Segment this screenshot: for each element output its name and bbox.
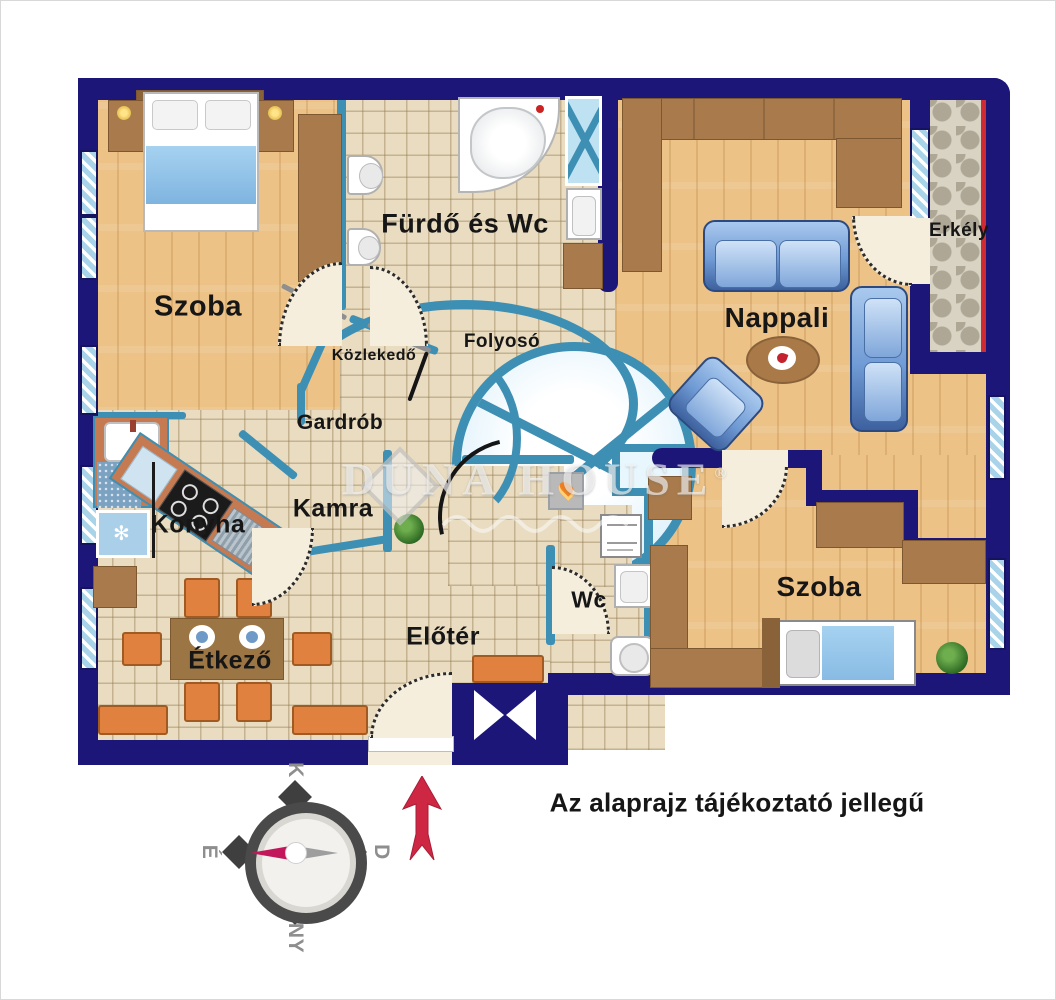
pillow — [205, 100, 251, 130]
column-x — [506, 690, 536, 740]
room-label-bedroom2: Szoba — [777, 571, 862, 603]
wc-sink — [614, 564, 654, 608]
window — [80, 150, 98, 216]
bidet-bowl — [358, 236, 380, 260]
desk-bedroom2 — [816, 502, 904, 548]
room-label-hallway: Közlekedő — [332, 347, 417, 365]
floor-plan: ✻ — [0, 0, 1056, 1000]
bench — [98, 705, 168, 735]
cabinet-bedroom2 — [648, 476, 692, 520]
bath-cabinet — [563, 243, 603, 289]
room-label-corridor: Folyosó — [464, 331, 540, 353]
sink-basin — [620, 571, 648, 603]
pillow — [786, 630, 820, 678]
single-bed — [768, 620, 916, 686]
room-label-balcony: Erkély — [929, 220, 989, 242]
window — [988, 395, 1006, 480]
toilet-bowl — [359, 163, 383, 189]
disclaimer-text: Az alaprajz tájékoztató jellegű — [550, 788, 925, 819]
bed-headboard — [762, 618, 780, 688]
washer-icon: ✻ — [113, 524, 133, 544]
dining-chair — [184, 682, 220, 722]
plate-center — [196, 631, 208, 643]
armchair-cushion — [682, 374, 748, 440]
toilet-bath — [347, 155, 383, 195]
wc-toilet — [610, 636, 654, 676]
door-gap-balcony — [910, 218, 930, 284]
wall-balcony-divider-top — [910, 98, 930, 130]
sofa-cushion — [864, 298, 902, 358]
compass-letter: É — [198, 845, 221, 860]
room-label-bathroom: Fürdő és Wc — [381, 209, 549, 240]
column-x — [474, 690, 504, 740]
wardrobe-bedroom2-v — [650, 545, 688, 651]
floorplan-screenshot: ✻ — [0, 0, 1056, 1000]
room-label-wc: Wc — [571, 587, 607, 614]
window — [80, 345, 98, 415]
double-bed — [143, 92, 259, 232]
compass-letter: NY — [284, 923, 307, 953]
sofa-cushion — [779, 240, 841, 288]
livingroom-cabinet-row — [622, 98, 902, 140]
compass-label-south: D — [369, 844, 393, 860]
blanket — [822, 626, 894, 680]
compass-label-east: K — [283, 762, 307, 778]
livingroom-cabinet-right — [836, 138, 902, 208]
blanket — [146, 146, 256, 204]
room-label-pantry: Kamra — [293, 495, 373, 524]
bathtub-faucet — [536, 105, 544, 113]
plant — [936, 642, 968, 674]
room-label-foyer: Előtér — [406, 623, 480, 652]
lamp — [117, 106, 131, 120]
door-leaf-entrance — [368, 736, 454, 752]
bench — [292, 705, 368, 735]
lamp — [268, 106, 282, 120]
compass-hub — [285, 842, 307, 864]
sofa — [703, 220, 850, 292]
room-label-bedroom1: Szoba — [154, 291, 242, 324]
compass-letter: K — [284, 762, 307, 778]
shower — [565, 96, 602, 186]
wardrobe-bedroom2-h — [650, 648, 772, 688]
window-balcony — [910, 128, 930, 220]
compass-label-north: É — [197, 845, 221, 860]
bathtub-basin — [470, 107, 546, 179]
washing-machine: ✻ — [96, 510, 150, 558]
pillow — [152, 100, 198, 130]
wardrobe-bedroom1 — [298, 114, 342, 282]
entrance-column-block — [452, 683, 558, 747]
room-label-dining: Étkező — [188, 647, 272, 676]
room-label-wardrobe: Gardrób — [297, 411, 383, 435]
north-arrow-icon — [400, 776, 444, 862]
sink-basin — [572, 196, 596, 236]
watermark-squiggle — [440, 508, 650, 534]
livingroom-cabinet-left — [622, 98, 662, 272]
window — [988, 558, 1006, 650]
room-label-kitchen: Konyha — [151, 511, 246, 540]
toilet-bowl — [619, 643, 649, 673]
compass: K D NY É — [195, 760, 405, 960]
chaise-sofa — [850, 286, 908, 432]
desk-bedroom2 — [902, 540, 986, 584]
hall-bench — [472, 655, 544, 683]
compass-label-west: NY — [283, 923, 307, 953]
kitchen-cabinet-low — [93, 566, 137, 608]
sofa-cushion — [715, 240, 777, 288]
utility-squiggle — [607, 542, 637, 544]
coffee-table — [746, 336, 820, 384]
bidet — [347, 228, 381, 266]
dining-chair — [184, 578, 220, 618]
stove-burner — [179, 481, 201, 503]
wall-balcony-divider-bottom — [910, 282, 930, 356]
bath-sink — [566, 188, 602, 240]
dining-chair — [236, 682, 272, 722]
dining-chair — [292, 632, 332, 666]
sink-faucet — [130, 420, 136, 432]
plate-center — [246, 631, 258, 643]
compass-ring — [245, 802, 367, 924]
compass-letter: D — [370, 844, 393, 860]
window — [80, 216, 98, 280]
sofa-cushion — [864, 362, 902, 422]
utility-squiggle — [607, 549, 633, 551]
room-label-livingroom: Nappali — [725, 302, 830, 334]
dining-chair — [122, 632, 162, 666]
